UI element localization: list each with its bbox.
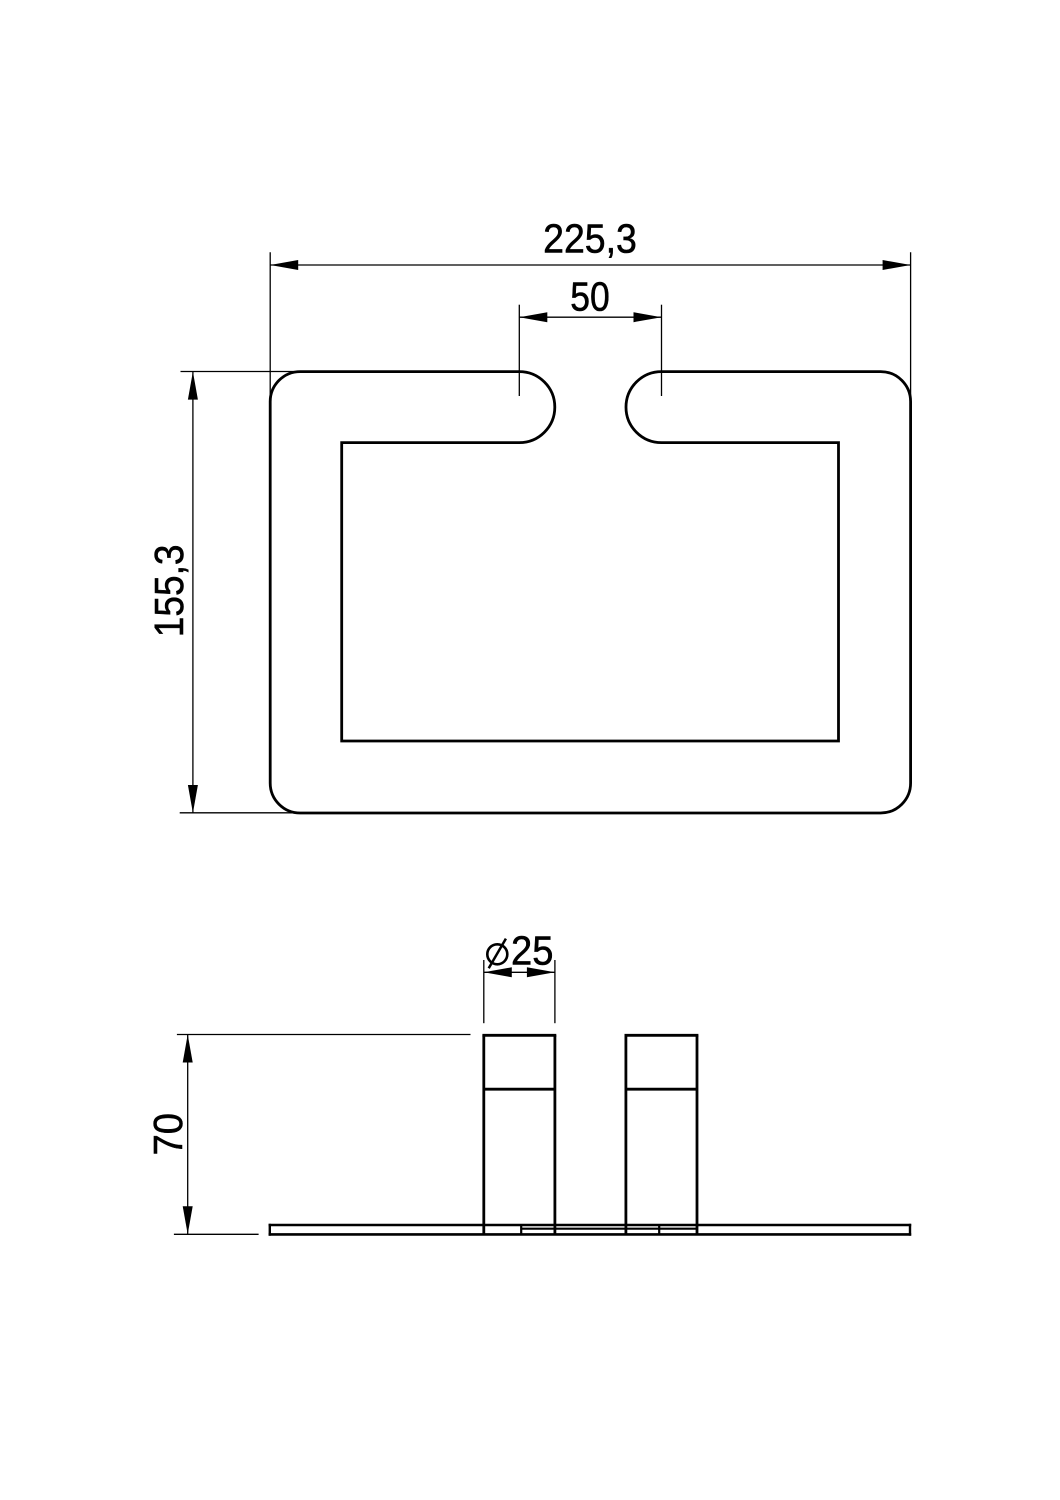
svg-text:25: 25: [511, 928, 553, 974]
svg-text:70: 70: [145, 1113, 191, 1156]
svg-text:155,3: 155,3: [146, 545, 192, 638]
svg-text:50: 50: [570, 274, 610, 320]
svg-text:225,3: 225,3: [543, 215, 637, 261]
